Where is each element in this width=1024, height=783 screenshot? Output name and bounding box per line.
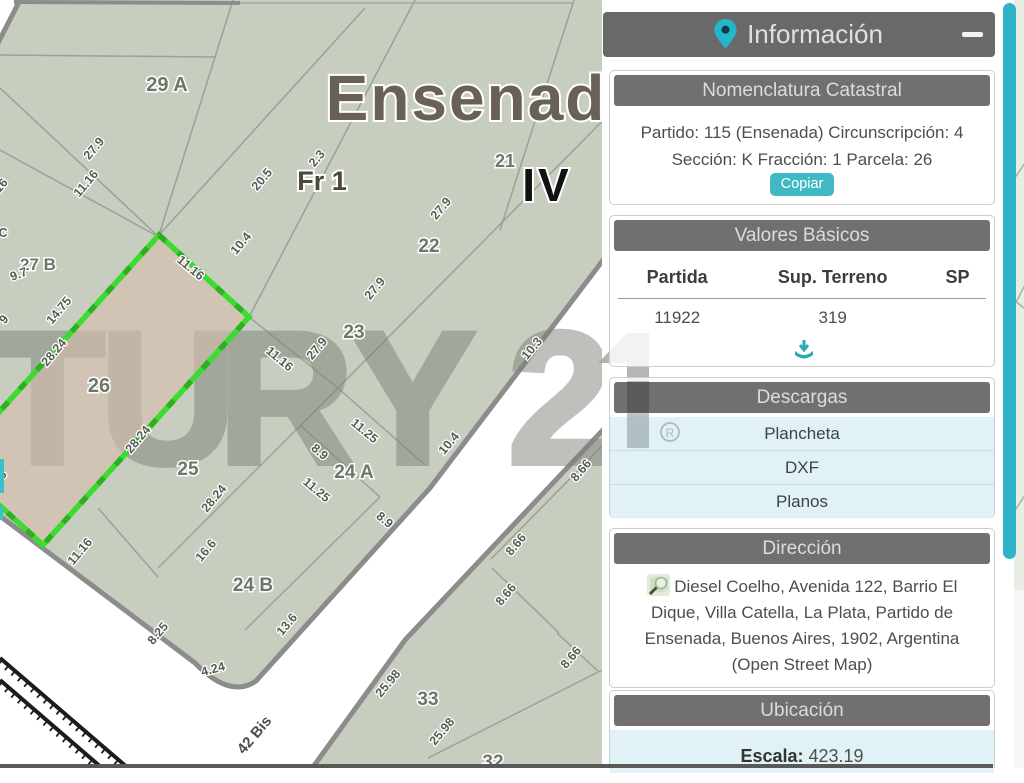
svg-text:R: R [666, 426, 675, 440]
